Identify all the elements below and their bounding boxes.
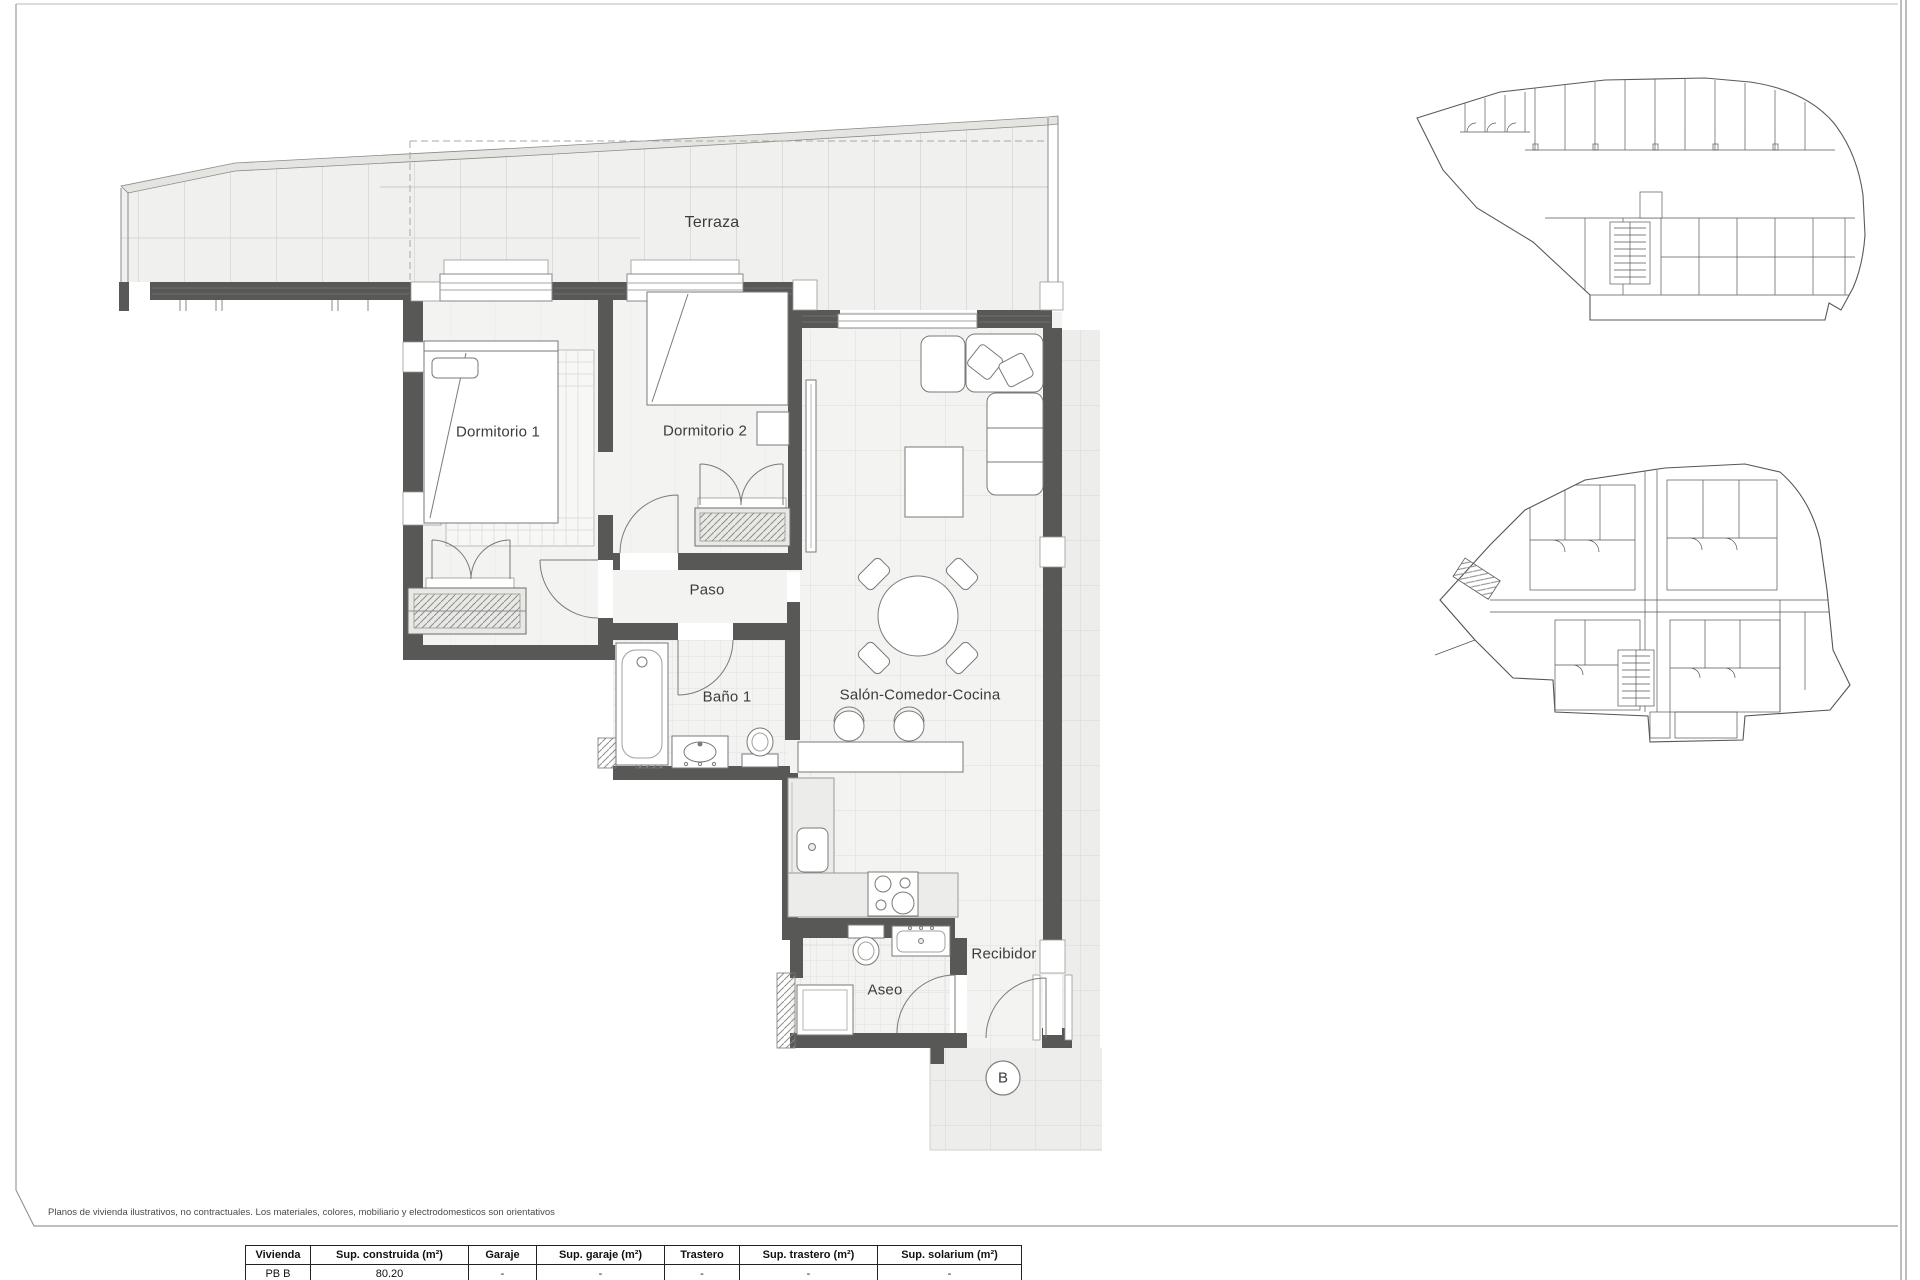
room-label-paso: Paso (690, 582, 725, 599)
sofa-chaise (921, 336, 965, 392)
bed-dorm2 (647, 292, 788, 405)
cell-sup-garaje: - (537, 1265, 665, 1280)
table-row: PB B 80.20 - - - - - (246, 1265, 1022, 1280)
col-vivienda: Vivienda (246, 1246, 311, 1265)
dining-table (878, 576, 958, 656)
toilet-bowl (853, 937, 879, 965)
room-label-terraza: Terraza (685, 214, 740, 232)
site-key-plan-thumbnail (1435, 464, 1850, 742)
cell-sup-solarium: - (878, 1265, 1022, 1280)
cell-trastero: - (665, 1265, 740, 1280)
col-sup-solarium: Sup. solarium (m²) (878, 1246, 1022, 1265)
toilet-bowl (747, 728, 773, 756)
cell-sup-trastero: - (740, 1265, 878, 1280)
room-label-aseo: Aseo (868, 982, 903, 999)
plan-sheet: Terraza Dormitorio 1 Dormitorio 2 Paso B… (0, 0, 1920, 1280)
sofa-right (987, 393, 1043, 495)
bar-stool (894, 711, 924, 741)
col-sup-trastero: Sup. trastero (m²) (740, 1246, 878, 1265)
nightstand (757, 412, 789, 445)
room-label-recibidor: Recibidor (971, 946, 1036, 963)
cell-vivienda: PB B (246, 1265, 311, 1280)
cell-sup-construida: 80.20 (311, 1265, 469, 1280)
col-trastero: Trastero (665, 1246, 740, 1265)
bar-stool (834, 711, 864, 741)
coffee-table (905, 447, 963, 517)
col-sup-construida: Sup. construida (m²) (311, 1246, 469, 1265)
hatched-wall-blocks (598, 738, 795, 1048)
floor-plan-drawing (0, 0, 1920, 1280)
table-header-row: Vivienda Sup. construida (m²) Garaje Sup… (246, 1246, 1022, 1265)
pillow (432, 358, 478, 378)
bed-headboard (424, 341, 558, 351)
room-label-salon: Salón-Comedor-Cocina (840, 687, 1001, 704)
disclaimer-text: Planos de vivienda ilustrativos, no cont… (48, 1207, 555, 1218)
terrace-area (119, 116, 1058, 311)
room-label-dormitorio1: Dormitorio 1 (456, 424, 540, 441)
bathroom-sink (672, 736, 728, 768)
cell-garaje: - (469, 1265, 537, 1280)
kitchen-peninsula (798, 742, 963, 772)
surface-spec-table: Vivienda Sup. construida (m²) Garaje Sup… (245, 1245, 1022, 1280)
cooktop (868, 872, 918, 916)
toilet-tank (848, 925, 884, 938)
shower (797, 985, 853, 1035)
col-garaje: Garaje (469, 1246, 537, 1265)
room-label-bano1: Baño 1 (703, 689, 752, 706)
bathtub (616, 643, 668, 765)
col-sup-garaje: Sup. garaje (m²) (537, 1246, 665, 1265)
garage-plan-thumbnail (1417, 78, 1865, 320)
unit-marker-label: B (998, 1070, 1008, 1087)
room-label-dormitorio2: Dormitorio 2 (663, 423, 747, 440)
